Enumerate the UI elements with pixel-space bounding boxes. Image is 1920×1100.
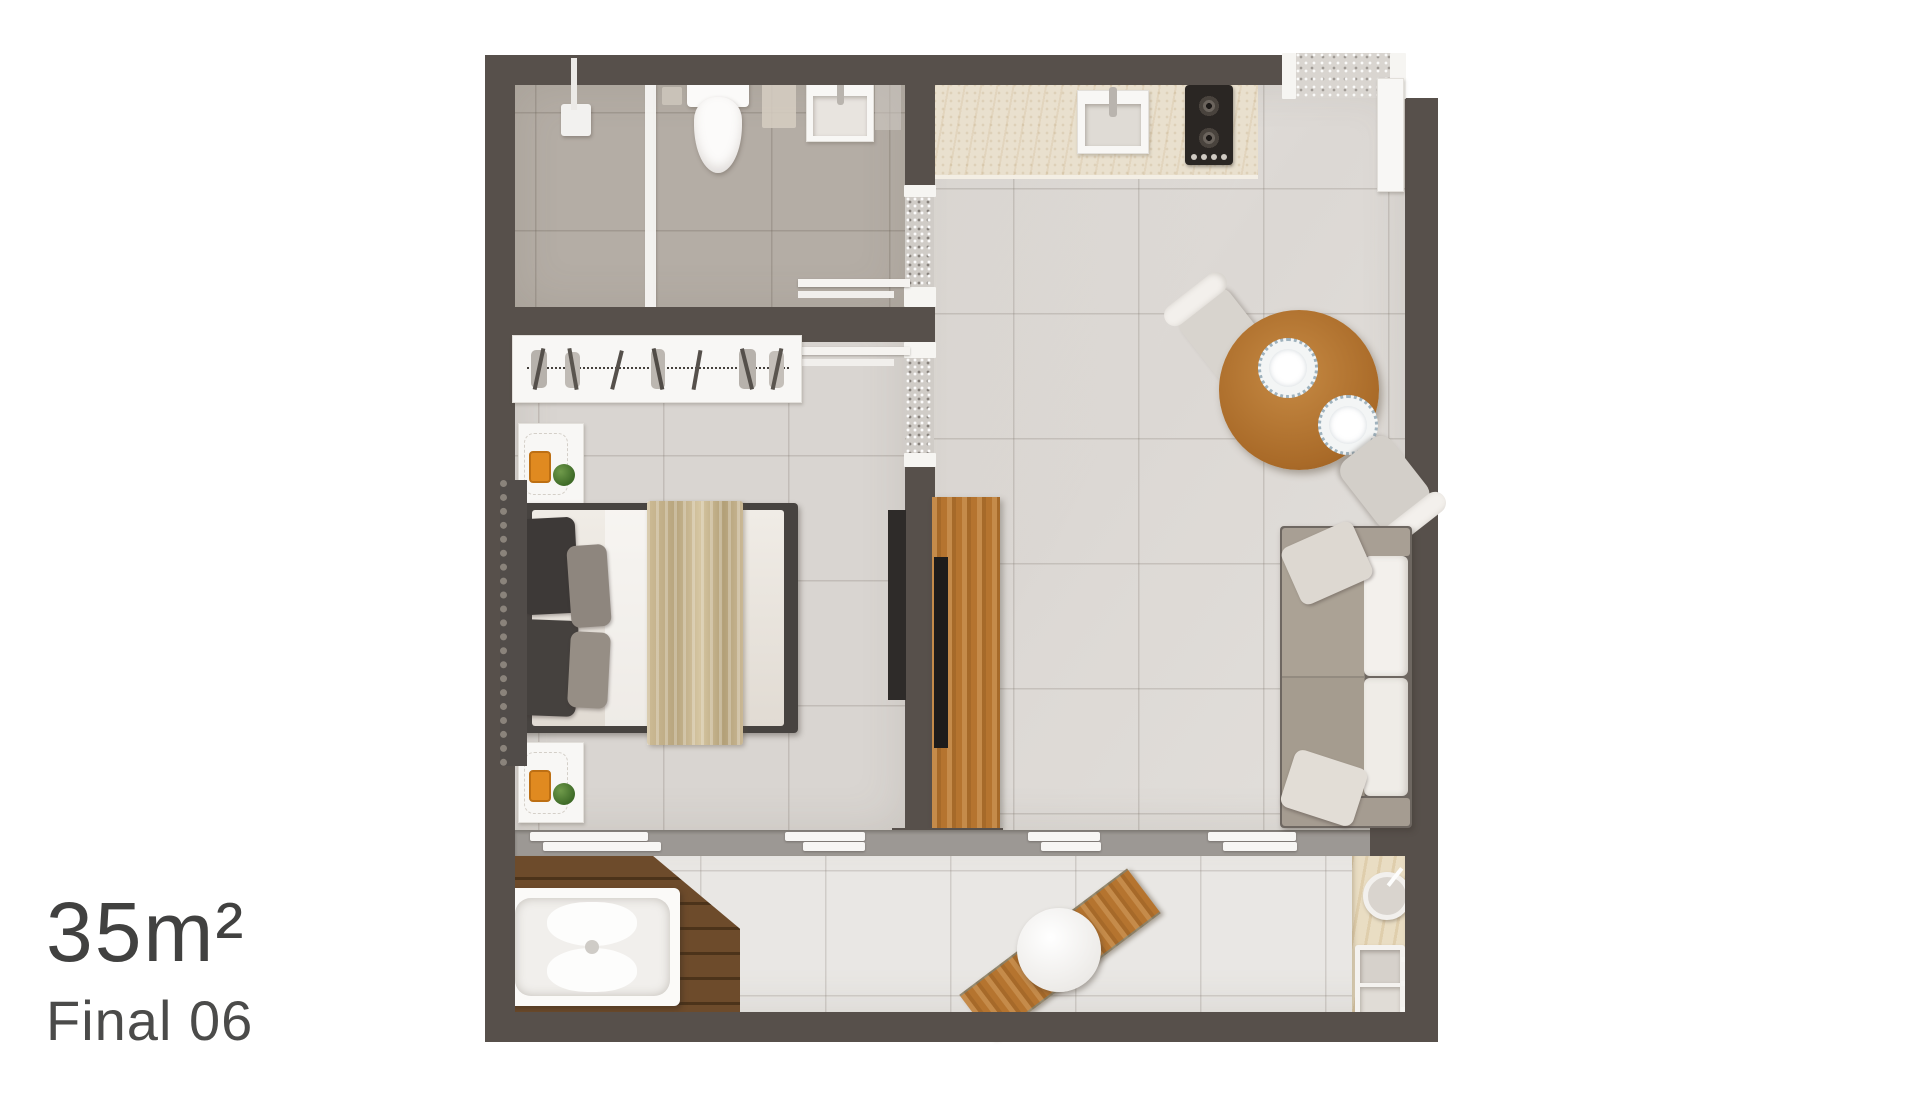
patio-table bbox=[1017, 908, 1101, 992]
tv-side-panel bbox=[888, 510, 906, 700]
plant-icon bbox=[553, 783, 575, 805]
glass-block-wall-2 bbox=[906, 358, 934, 453]
floorplan bbox=[485, 40, 1440, 1045]
cooktop-knob bbox=[1201, 154, 1207, 160]
sofa-back-cushion bbox=[1364, 678, 1408, 796]
ice-bucket bbox=[1363, 872, 1411, 920]
tv-screen bbox=[934, 557, 948, 748]
toilet-bowl bbox=[694, 97, 742, 173]
divider-cap-1 bbox=[904, 185, 936, 197]
entry-jamb-left bbox=[1282, 53, 1296, 99]
towel-shelf-lower-2 bbox=[798, 359, 894, 366]
sliding-door-panel bbox=[1028, 832, 1100, 841]
sliding-door-panel bbox=[785, 832, 865, 841]
glass-block-wall-1 bbox=[906, 197, 934, 287]
entry-door-leaf bbox=[1377, 78, 1404, 192]
cooktop-knob bbox=[1221, 154, 1227, 160]
wardrobe bbox=[512, 335, 802, 403]
hanger-icon bbox=[692, 350, 703, 390]
bathroom-vanity bbox=[806, 82, 874, 142]
tv-partition-wall bbox=[905, 467, 935, 852]
divider-cap-2 bbox=[904, 287, 936, 307]
sliding-door-panel bbox=[530, 832, 648, 841]
table-lamp-icon bbox=[529, 770, 551, 802]
sofa bbox=[1280, 526, 1412, 828]
caption: 35m² Final 06 bbox=[46, 890, 253, 1053]
floorplan-render: 35m² Final 06 bbox=[0, 0, 1920, 1100]
wall-top bbox=[485, 55, 1285, 85]
sliding-door-panel bbox=[543, 842, 661, 851]
plate-center bbox=[1269, 349, 1307, 387]
kitchen-sink bbox=[1077, 90, 1149, 154]
towel-shelf-upper-2 bbox=[798, 291, 894, 298]
bath-mat bbox=[762, 78, 796, 128]
shower-glass-screen bbox=[645, 85, 656, 307]
hot-tub-seat bbox=[547, 948, 637, 992]
pillow-gray bbox=[566, 544, 612, 629]
sliding-door-panel bbox=[1041, 842, 1101, 851]
divider-wall-top bbox=[905, 85, 935, 185]
plant-icon bbox=[553, 464, 575, 486]
towel-on-wall bbox=[875, 80, 901, 130]
unit-label: Final 06 bbox=[46, 988, 253, 1053]
outdoor-sink-basin bbox=[1360, 950, 1400, 983]
burner-icon bbox=[1198, 127, 1220, 149]
bed-throw-texture bbox=[647, 501, 743, 745]
towel-shelf-upper bbox=[798, 279, 910, 287]
kitchen-faucet-icon bbox=[1109, 87, 1117, 117]
sliding-door-panel bbox=[803, 842, 865, 851]
toilet bbox=[687, 77, 749, 175]
divider-cap-4 bbox=[904, 453, 936, 467]
area-label: 35m² bbox=[46, 890, 253, 974]
dinner-plate bbox=[1258, 338, 1318, 398]
cooktop bbox=[1185, 85, 1233, 165]
hanger-icon bbox=[610, 350, 624, 390]
shower-pipe bbox=[571, 58, 577, 110]
track-end-right bbox=[1370, 828, 1405, 856]
toilet-paper-holder bbox=[662, 87, 682, 105]
towel-shelf-lower bbox=[798, 347, 910, 355]
hot-tub-drain bbox=[585, 940, 599, 954]
sliding-door-panel bbox=[1208, 832, 1296, 841]
nightstand bbox=[518, 742, 584, 823]
sliding-door-panel bbox=[1223, 842, 1297, 851]
wall-bottom bbox=[485, 1012, 1438, 1042]
hot-tub bbox=[505, 888, 680, 1006]
burner-icon bbox=[1198, 95, 1220, 117]
table-lamp-icon bbox=[529, 451, 551, 483]
cooktop-knob bbox=[1211, 154, 1217, 160]
pillow-gray bbox=[567, 631, 611, 709]
nightstand bbox=[518, 423, 584, 504]
bed-headboard bbox=[500, 480, 527, 766]
bed-sheet-fold bbox=[605, 510, 653, 726]
cooktop-knob bbox=[1191, 154, 1197, 160]
